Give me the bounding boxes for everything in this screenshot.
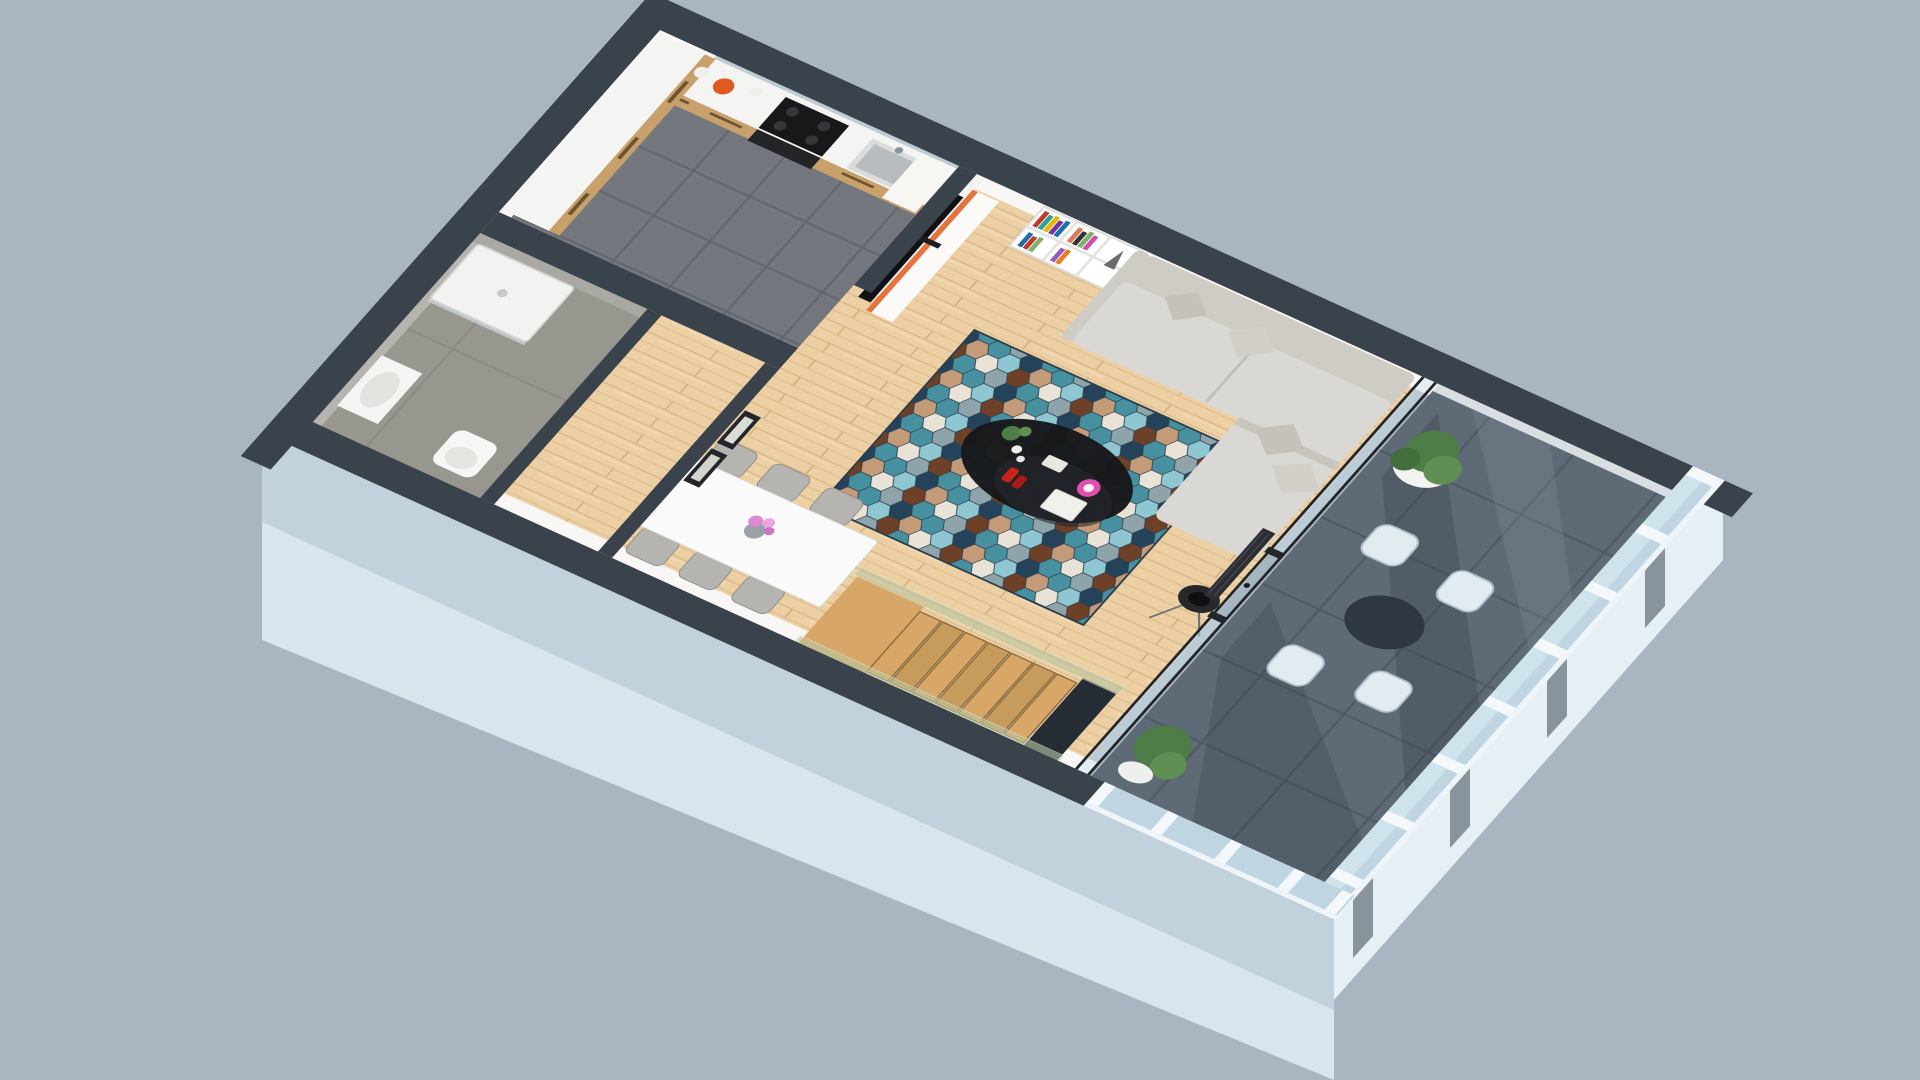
floor-plan-stage xyxy=(0,0,1920,1080)
floor-plan-render xyxy=(0,0,1920,1080)
